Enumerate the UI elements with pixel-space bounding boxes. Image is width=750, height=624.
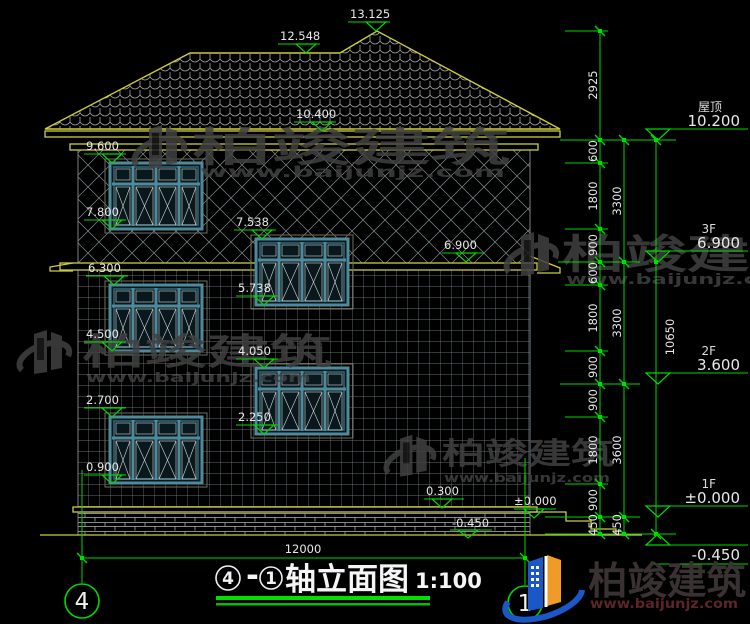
bottom-dimension: 12000	[77, 542, 530, 563]
level-2f: 2F 3.600	[645, 344, 748, 384]
watermark-brand: 柏竣建筑	[82, 332, 332, 373]
svg-text:4.500: 4.500	[86, 327, 119, 341]
svg-text:900: 900	[586, 356, 600, 378]
svg-text:-0.450: -0.450	[452, 516, 489, 530]
svg-text:3600: 3600	[610, 435, 624, 464]
watermark-url: www.baijunjz.com	[444, 471, 610, 485]
title-axis-right: 1	[265, 569, 277, 589]
svg-text:450: 450	[586, 514, 600, 536]
svg-text:9.600: 9.600	[86, 139, 119, 153]
svg-text:7.800: 7.800	[86, 205, 119, 219]
svg-text:0.900: 0.900	[86, 460, 119, 474]
plinth-top-band	[73, 507, 537, 512]
svg-text:2.700: 2.700	[86, 393, 119, 407]
title-dash: -	[246, 558, 259, 594]
svg-text:±0.000: ±0.000	[514, 494, 557, 508]
svg-text:450: 450	[610, 514, 624, 536]
cad-elevation-canvas: 柏竣建筑 www.baijunjz.com 柏竣建筑 www.baijunjz.…	[0, 0, 750, 624]
svg-text:±0.000: ±0.000	[684, 489, 740, 507]
svg-text:2.250: 2.250	[238, 410, 271, 424]
svg-text:3300: 3300	[610, 308, 624, 337]
svg-text:900: 900	[586, 389, 600, 411]
svg-text:600: 600	[586, 262, 600, 284]
window-stair-upper	[256, 239, 348, 305]
svg-text:5.738: 5.738	[238, 281, 271, 295]
svg-text:900: 900	[586, 489, 600, 511]
svg-text:7.538: 7.538	[236, 215, 269, 229]
svg-text:10.400: 10.400	[296, 107, 336, 121]
svg-text:4: 4	[75, 589, 90, 615]
level-1f: 1F ±0.000	[645, 477, 748, 517]
watermark-left: 柏竣建筑 www.baijunjz.com	[19, 330, 332, 386]
svg-text:3.600: 3.600	[697, 356, 740, 374]
level-roof: 屋顶 10.200	[645, 100, 748, 140]
svg-text:600: 600	[586, 140, 600, 162]
watermark-url: www.baijunjz.com	[86, 371, 311, 386]
window-3f-left	[110, 163, 202, 229]
level-mark-12548: 12.548	[278, 29, 320, 53]
title-scale: 1:100	[415, 569, 482, 593]
svg-text:6.900: 6.900	[697, 234, 740, 252]
svg-text:2925: 2925	[586, 70, 600, 99]
svg-text:1800: 1800	[586, 435, 600, 464]
dimension-total-height: 10650	[663, 319, 677, 356]
title-axis-left: 4	[222, 569, 234, 589]
svg-text:900: 900	[586, 234, 600, 256]
title-underline-1	[216, 596, 430, 600]
svg-text:12.548: 12.548	[280, 29, 320, 43]
title-name: 轴立面图	[285, 562, 409, 598]
svg-text:4.050: 4.050	[238, 344, 271, 358]
watermark-url: www.baijunjz.com	[200, 163, 505, 181]
svg-text:1800: 1800	[586, 181, 600, 210]
svg-text:10.200: 10.200	[688, 112, 741, 130]
svg-text:13.125: 13.125	[350, 7, 390, 21]
brand-logo-url: www.baijunjz.com	[590, 597, 738, 612]
svg-text:3300: 3300	[610, 186, 624, 215]
svg-text:6.300: 6.300	[88, 261, 121, 275]
svg-text:1800: 1800	[586, 303, 600, 332]
title-underline-2	[216, 603, 430, 606]
window-1f-left	[110, 417, 202, 483]
entry-steps	[530, 512, 616, 535]
drawing-title: 4 - 1 轴立面图 1:100	[216, 558, 482, 606]
level-mark-13125: 13.125	[348, 7, 390, 31]
svg-text:0.300: 0.300	[426, 484, 459, 498]
svg-text:6.900: 6.900	[444, 238, 477, 252]
bottom-dimension-value: 12000	[285, 542, 322, 556]
elevation-drawing-svg: 柏竣建筑 www.baijunjz.com 柏竣建筑 www.baijunjz.…	[0, 0, 750, 624]
